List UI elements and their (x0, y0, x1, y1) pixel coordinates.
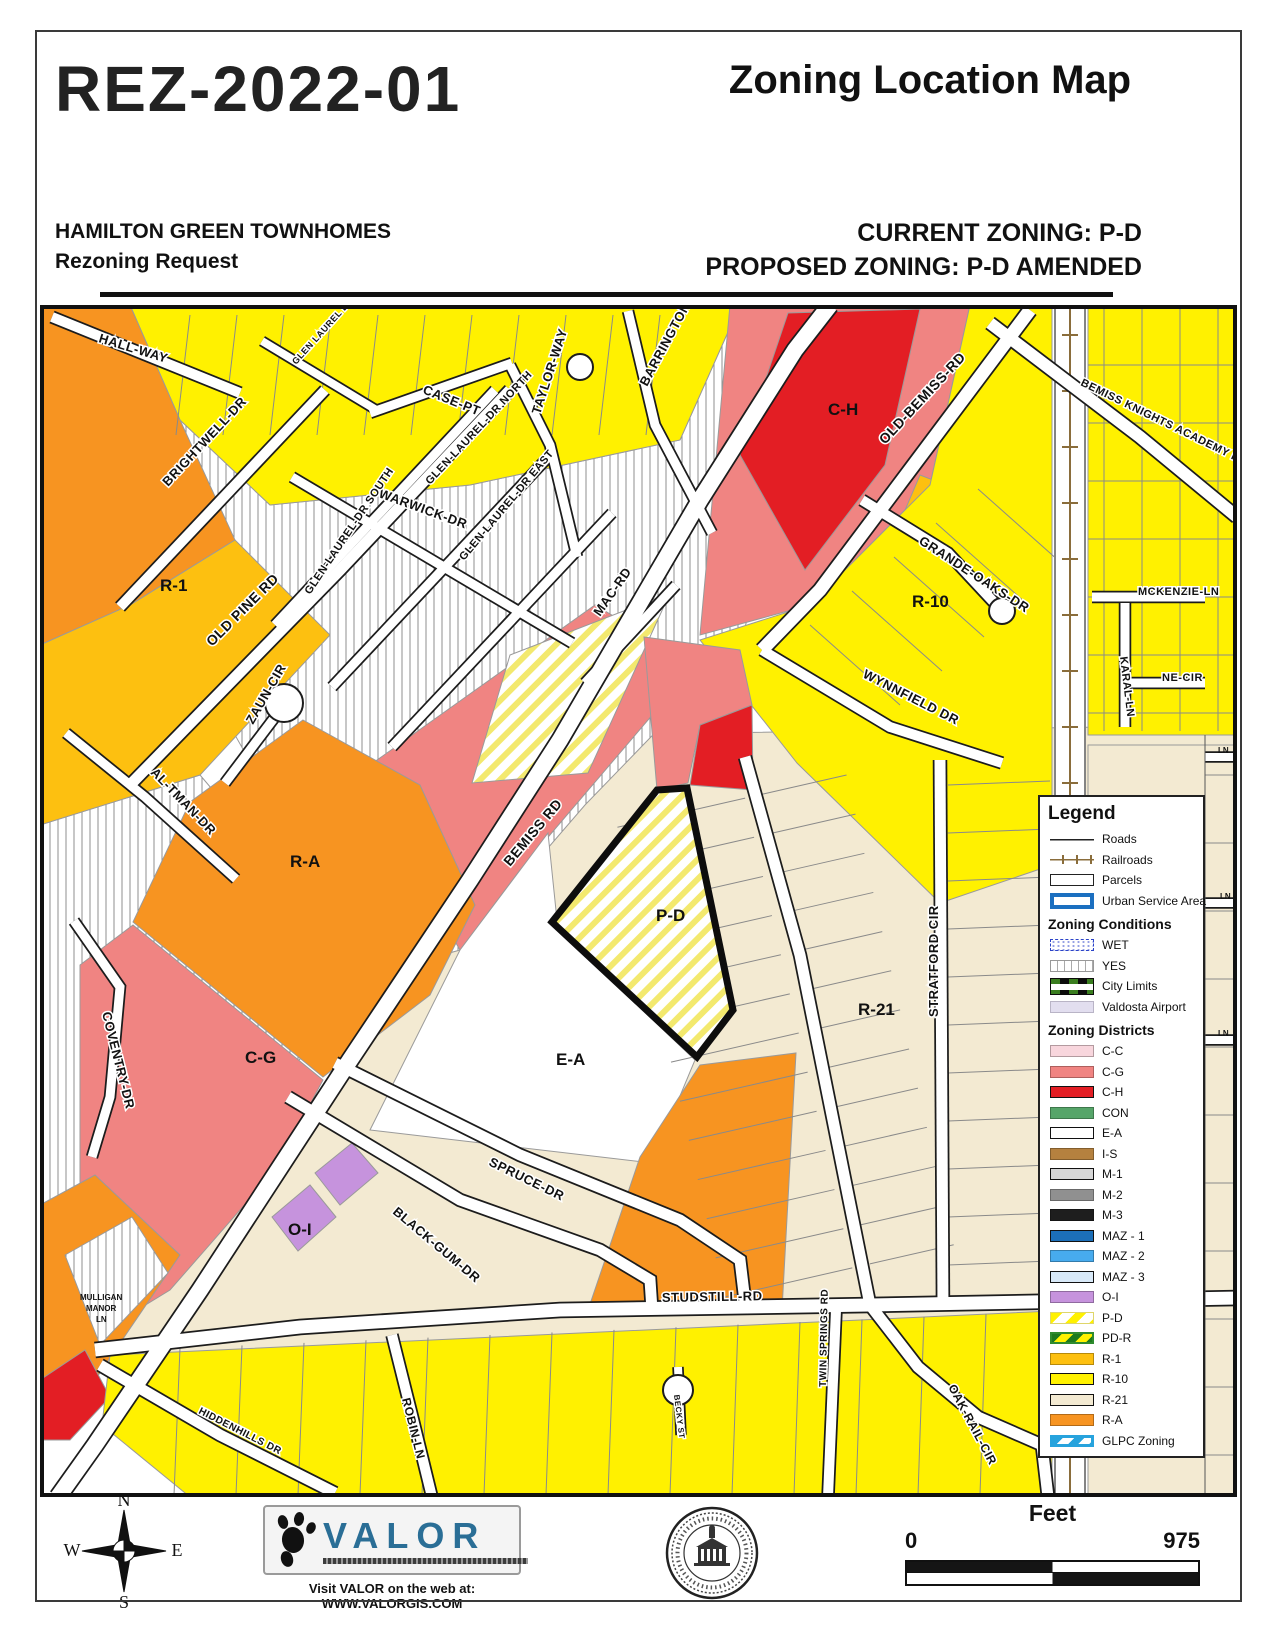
legend-item: M-1 (1048, 1164, 1197, 1185)
legend-swatch (1050, 854, 1094, 866)
legend-item-label: PD-R (1102, 1331, 1131, 1345)
road-label: TWIN SPRINGS RD (818, 1289, 831, 1387)
road-label: NE-CIR (1162, 672, 1203, 684)
compass-rose: N S W E (58, 1492, 190, 1610)
legend-item-label: Valdosta Airport (1102, 1000, 1186, 1014)
legend-swatch (1050, 1394, 1094, 1406)
legend-item: YES (1048, 956, 1197, 977)
legend-item-label: R-A (1102, 1413, 1123, 1427)
legend-item-label: MAZ - 3 (1102, 1270, 1145, 1284)
compass-n: N (118, 1492, 131, 1510)
legend-swatch (1050, 833, 1094, 845)
legend-title: Legend (1048, 803, 1197, 825)
zone-label: R-A (290, 852, 320, 871)
legend-item: Parcels (1048, 870, 1197, 891)
legend-item-label: C-H (1102, 1085, 1123, 1099)
legend-base-items: RoadsRailroadsParcelsUrban Service Area (1048, 829, 1197, 911)
compass-e: E (172, 1540, 183, 1560)
project-name: HAMILTON GREEN TOWNHOMES (55, 220, 391, 244)
legend-item: R-10 (1048, 1369, 1197, 1390)
request-type: Rezoning Request (55, 250, 238, 274)
legend-item-label: CON (1102, 1106, 1129, 1120)
scale-bar (905, 1560, 1200, 1586)
legend-item-label: MAZ - 2 (1102, 1249, 1145, 1263)
small-label: MULLIGAN (80, 1293, 122, 1302)
legend-item-label: GLPC Zoning (1102, 1434, 1175, 1448)
legend-item-label: City Limits (1102, 979, 1157, 993)
legend-swatch (1050, 1312, 1094, 1324)
zone-label: C-G (245, 1048, 276, 1067)
zoning-map-page: REZ-2022-01 Zoning Location Map HAMILTON… (0, 0, 1275, 1651)
legend-swatch (1050, 1230, 1094, 1242)
zone-label: C-H (828, 400, 858, 419)
small-label: LN (96, 1315, 107, 1324)
legend-item: M-2 (1048, 1185, 1197, 1206)
legend-item-label: Urban Service Area (1102, 894, 1206, 908)
legend-swatch (1050, 960, 1094, 972)
legend-swatch (1050, 1189, 1094, 1201)
legend-item: CON (1048, 1103, 1197, 1124)
legend-swatch (1050, 1353, 1094, 1365)
legend-panel: Legend RoadsRailroadsParcelsUrban Servic… (1038, 795, 1205, 1458)
legend-item: Roads (1048, 829, 1197, 850)
page-title: Zoning Location Map (700, 58, 1160, 103)
legend-swatch (1050, 1168, 1094, 1180)
small-label: MANOR (86, 1304, 116, 1313)
legend-item-label: R-1 (1102, 1352, 1121, 1366)
legend-item-label: P-D (1102, 1311, 1123, 1325)
legend-item: P-D (1048, 1308, 1197, 1329)
legend-item-label: O-I (1102, 1290, 1119, 1304)
compass-s: S (119, 1592, 129, 1610)
case-id: REZ-2022-01 (55, 52, 461, 126)
legend-conditions: WETYESCity LimitsValdosta Airport (1048, 935, 1197, 1017)
road-label: STUDSTILL-RD (662, 1288, 763, 1305)
legend-item: PD-R (1048, 1328, 1197, 1349)
valor-tagline (323, 1558, 528, 1564)
zone-label: R-10 (912, 592, 949, 611)
legend-swatch (1050, 1107, 1094, 1119)
proposed-zoning: PROPOSED ZONING: P-D AMENDED (620, 253, 1142, 282)
legend-item-label: C-C (1102, 1044, 1123, 1058)
small-label: LN (1218, 746, 1229, 755)
legend-item: MAZ - 3 (1048, 1267, 1197, 1288)
legend-item: City Limits (1048, 976, 1197, 997)
legend-swatch (1050, 1209, 1094, 1221)
legend-swatch (1050, 1291, 1094, 1303)
legend-swatch (1050, 893, 1094, 909)
legend-swatch (1050, 1001, 1094, 1013)
small-label: LN (1220, 892, 1231, 901)
legend-swatch (1050, 1148, 1094, 1160)
legend-item: Railroads (1048, 850, 1197, 871)
zone-r10-east (1088, 305, 1237, 735)
legend-districts: C-CC-GC-HCONE-AI-SM-1M-2M-3MAZ - 1MAZ - … (1048, 1041, 1197, 1451)
county-seal (664, 1505, 760, 1601)
valor-url: Visit VALOR on the web at: WWW.VALORGIS.… (258, 1581, 526, 1611)
valor-wordmark: VALOR (323, 1517, 528, 1555)
legend-item-label: C-G (1102, 1065, 1124, 1079)
legend-conditions-title: Zoning Conditions (1048, 916, 1197, 932)
legend-item: R-1 (1048, 1349, 1197, 1370)
zone-label: R-1 (160, 576, 187, 595)
legend-item: E-A (1048, 1123, 1197, 1144)
legend-swatch (1050, 978, 1094, 995)
legend-swatch (1050, 1086, 1094, 1098)
legend-item-label: Railroads (1102, 853, 1153, 867)
road-label: STRATFORD CIR (926, 905, 941, 1017)
legend-item: GLPC Zoning (1048, 1431, 1197, 1452)
legend-item: C-G (1048, 1062, 1197, 1083)
header-rule (100, 292, 1113, 297)
legend-item: I-S (1048, 1144, 1197, 1165)
legend-item: M-3 (1048, 1205, 1197, 1226)
legend-item: R-A (1048, 1410, 1197, 1431)
legend-item-label: Roads (1102, 832, 1137, 846)
zone-label: P-D (656, 906, 685, 925)
small-label: LN (1218, 1029, 1229, 1038)
legend-swatch (1050, 1435, 1094, 1447)
legend-item-label: YES (1102, 959, 1126, 973)
legend-swatch (1050, 1271, 1094, 1283)
legend-swatch (1050, 939, 1094, 951)
legend-item: WET (1048, 935, 1197, 956)
valor-paw-icon (273, 1512, 317, 1568)
legend-item: Valdosta Airport (1048, 997, 1197, 1018)
legend-item-label: R-21 (1102, 1393, 1128, 1407)
legend-item-label: M-3 (1102, 1208, 1123, 1222)
legend-item-label: M-1 (1102, 1167, 1123, 1181)
legend-swatch (1050, 1066, 1094, 1078)
legend-swatch (1050, 1373, 1094, 1385)
legend-item: MAZ - 1 (1048, 1226, 1197, 1247)
valor-logo: VALOR (263, 1505, 521, 1575)
legend-swatch (1050, 1045, 1094, 1057)
current-zoning: CURRENT ZONING: P-D (620, 219, 1142, 248)
zone-label: O-I (288, 1220, 312, 1239)
legend-item-label: M-2 (1102, 1188, 1123, 1202)
compass-w: W (64, 1540, 81, 1560)
zone-label: R-21 (858, 1000, 895, 1019)
legend-swatch (1050, 1250, 1094, 1262)
legend-item: O-I (1048, 1287, 1197, 1308)
legend-item-label: R-10 (1102, 1372, 1128, 1386)
legend-item-label: WET (1102, 938, 1129, 952)
legend-item: C-C (1048, 1041, 1197, 1062)
legend-item-label: Parcels (1102, 873, 1142, 887)
scale-units-label: Feet (905, 1500, 1200, 1527)
legend-item-label: E-A (1102, 1126, 1122, 1140)
legend-item: R-21 (1048, 1390, 1197, 1411)
zone-label: E-A (556, 1050, 585, 1069)
legend-item: C-H (1048, 1082, 1197, 1103)
legend-swatch (1050, 874, 1094, 886)
legend-swatch (1050, 1332, 1094, 1344)
legend-swatch (1050, 1127, 1094, 1139)
scale-end: 975 (905, 1528, 1200, 1554)
road-label: MCKENZIE-LN (1138, 586, 1219, 598)
legend-item: MAZ - 2 (1048, 1246, 1197, 1267)
legend-item: Urban Service Area (1048, 891, 1197, 912)
legend-swatch (1050, 1414, 1094, 1426)
legend-item-label: MAZ - 1 (1102, 1229, 1145, 1243)
legend-districts-title: Zoning Districts (1048, 1022, 1197, 1038)
legend-item-label: I-S (1102, 1147, 1117, 1161)
